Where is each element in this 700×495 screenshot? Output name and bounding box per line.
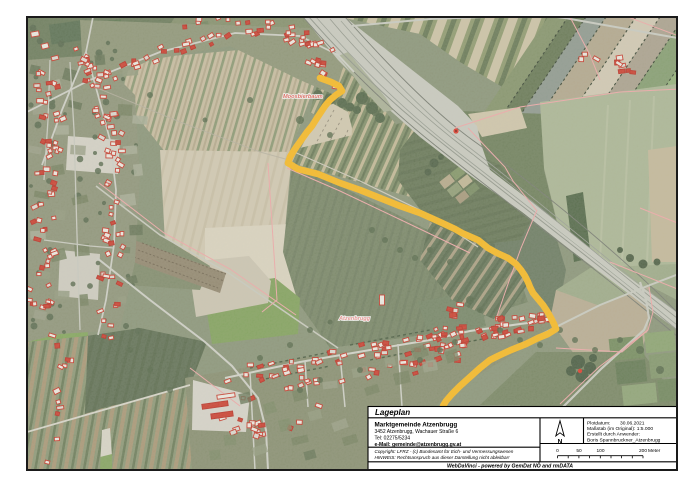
svg-text:Boris Spannbruckner_Atzenbrugg: Boris Spannbruckner_Atzenbrugg (587, 437, 661, 443)
svg-text:0: 0 (556, 448, 559, 454)
svg-text:Lageplan: Lageplan (375, 408, 410, 417)
svg-text:e-Mail: gemeinde@atzenbrugg.gv: e-Mail: gemeinde@atzenbrugg.gv.at (375, 442, 462, 448)
svg-text:Erstellt durch Anwender:: Erstellt durch Anwender: (587, 432, 640, 438)
svg-text:Maßstab (im Original): 1:5.00: Maßstab (im Original): 1:5.000 (587, 426, 653, 432)
svg-text:N: N (558, 438, 563, 445)
svg-text:Tel: 02275/5234: Tel: 02275/5234 (375, 436, 411, 442)
svg-text:Copyright: LFRZ - (c) Bundesam: Copyright: LFRZ - (c) Bundesamt für Eich… (375, 449, 514, 454)
svg-text:Marktgemeinde Atzenbrugg: Marktgemeinde Atzenbrugg (375, 421, 458, 428)
svg-text:Meter: Meter (648, 448, 661, 454)
svg-text:HINWEIS: Rechtsanspruch aus di: HINWEIS: Rechtsanspruch aus dieser Darst… (375, 455, 511, 460)
svg-text:100: 100 (596, 448, 604, 454)
svg-text:3452 Atzenbrugg, Wachauer Stra: 3452 Atzenbrugg, Wachauer Straße 6 (375, 429, 459, 435)
svg-text:50: 50 (576, 448, 582, 454)
svg-text:30.06.2021: 30.06.2021 (620, 421, 645, 427)
svg-text:Plotdatum:: Plotdatum: (587, 421, 610, 427)
svg-text:200: 200 (639, 448, 647, 454)
svg-text:WebDaVinci - powered by GemDat: WebDaVinci - powered by GemDat NÖ and rm… (447, 463, 573, 470)
